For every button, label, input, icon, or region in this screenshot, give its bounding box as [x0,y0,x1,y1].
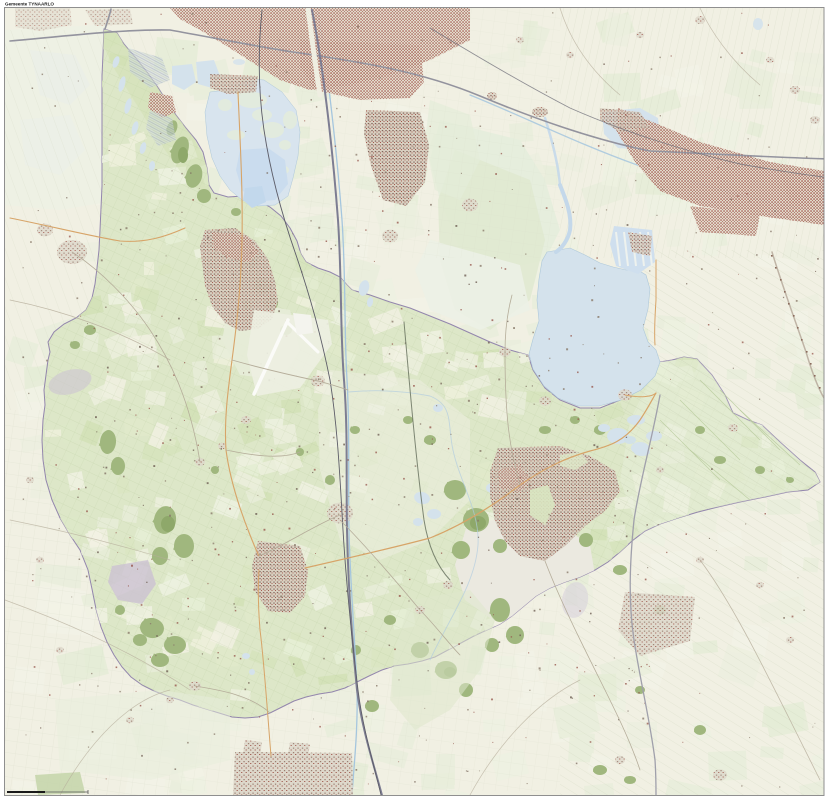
svg-text:Gemeente TYNAARLO: Gemeente TYNAARLO [5,2,54,7]
